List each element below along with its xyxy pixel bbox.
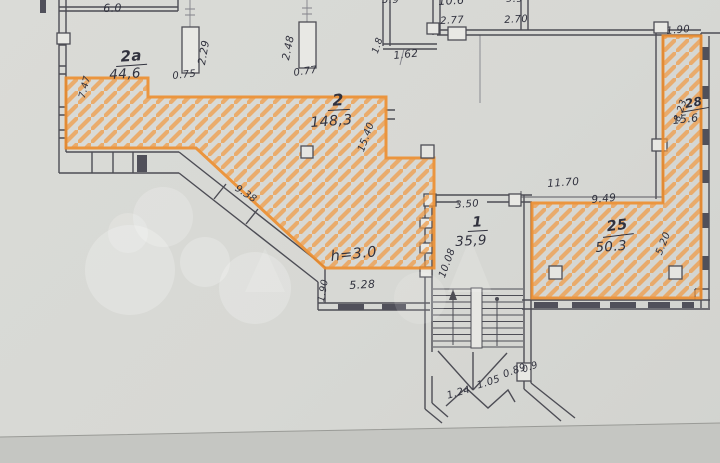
dim-left-height: 7.47 [78, 75, 93, 99]
dim-vest-w: 5.28 [349, 279, 376, 291]
dim-stair-1: 1.24 [446, 385, 472, 401]
annotations: 6.0 2a 44,6 7.47 2.29 0.75 2.48 0.77 1.8… [0, 0, 720, 463]
dim-949: 9.49 [591, 193, 617, 206]
dim-520: 5.20 [655, 231, 673, 257]
dim-strip-w: 1.90 [666, 25, 691, 37]
dim-col-a-len: 2.29 [197, 39, 212, 65]
ceiling-height: h=3.0 [330, 245, 378, 264]
room-2a-number: 2a [115, 48, 147, 67]
room-25-area: 50.3 [595, 240, 628, 256]
room-25-number: 25 [601, 217, 634, 237]
dim-col-b-len: 2.48 [281, 35, 296, 62]
dim-1170: 11.70 [547, 177, 580, 190]
room-1-area: 35,9 [455, 234, 487, 249]
dim-col-a-w: 0.75 [172, 70, 197, 82]
dim-big-room-h: 15.40 [357, 121, 377, 153]
room-28-area: 15.6 [672, 112, 699, 126]
dim-top-left-width: 6.0 [103, 2, 122, 14]
dim-270: 2.70 [504, 15, 528, 26]
dim-stair-2: 1.05 [476, 375, 502, 392]
room-2a-area: 44,6 [109, 67, 141, 82]
dim-col-b-w: 0.77 [293, 66, 318, 79]
dim-stair-w: 3.50 [455, 199, 480, 211]
dim-277: 2.77 [440, 16, 464, 27]
dim-diag-wall: 9.38 [233, 184, 258, 205]
room-2-number: 2 [327, 92, 349, 111]
dim-niche-h: 1.8 [371, 36, 385, 54]
dim-niche-w: 1.62 [393, 48, 419, 61]
dim-vest-h: 1.90 [317, 279, 330, 303]
room-top-3-area: 9.9 [506, 0, 523, 5]
dim-stair-h: 10.08 [438, 247, 458, 279]
room-top-2-area: 10.6 [438, 0, 465, 7]
dim-stair-4: 0.9 [521, 360, 540, 375]
room-28-number: 28 [679, 94, 709, 113]
room-2-area: 148,3 [310, 113, 353, 130]
floor-plan-page: 6.0 2a 44,6 7.47 2.29 0.75 2.48 0.77 1.8… [0, 0, 720, 463]
room-1-number: 1 [467, 215, 488, 232]
room-top-1-area: 5.9 [382, 0, 399, 6]
